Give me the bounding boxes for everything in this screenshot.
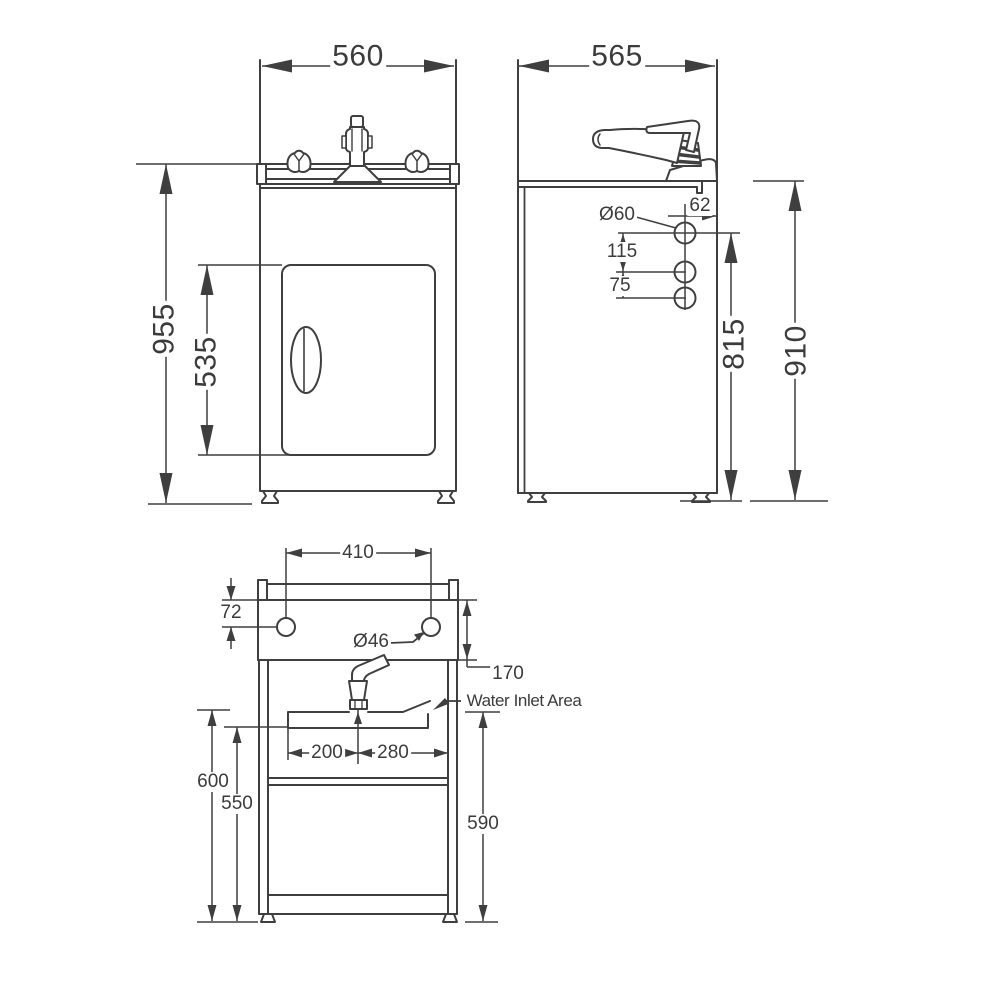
dimension-arrows xyxy=(160,60,802,922)
dim-565-label: 565 xyxy=(589,40,645,72)
right-tap-knob xyxy=(405,151,428,172)
front-view xyxy=(257,60,459,503)
side-faucet xyxy=(593,121,717,181)
dim-o46-label: Ø46 xyxy=(351,632,391,652)
dim-560-label: 560 xyxy=(330,40,386,72)
dim-600-label: 600 xyxy=(195,772,231,792)
front-faucet xyxy=(334,116,381,182)
dim-115-label: 115 xyxy=(605,242,639,262)
dim-550-label: 550 xyxy=(219,794,255,814)
dim-410-label: 410 xyxy=(340,543,376,563)
technical-drawing-canvas: 560 565 955 535 815 910 62 Ø60 115 75 41… xyxy=(0,0,1000,1000)
dim-815-label: 815 xyxy=(718,316,750,372)
dim-200-label: 200 xyxy=(309,743,345,763)
water-inlet-area-label: Water Inlet Area xyxy=(465,692,584,710)
left-tap-knob xyxy=(287,151,310,172)
dim-72-label: 72 xyxy=(218,603,243,623)
dim-o60-label: Ø60 xyxy=(597,205,637,225)
dim-535-label: 535 xyxy=(190,334,222,390)
rear-faucet xyxy=(349,655,389,709)
dim-910-label: 910 xyxy=(780,323,812,379)
dim-62-label: 62 xyxy=(687,196,712,216)
drawing-geometry xyxy=(0,0,1000,1000)
dim-75-label: 75 xyxy=(607,276,632,296)
dim-590-label: 590 xyxy=(465,814,501,834)
dim-170-label: 170 xyxy=(490,664,526,684)
dim-280-label: 280 xyxy=(375,743,411,763)
dim-955-label: 955 xyxy=(148,301,180,357)
